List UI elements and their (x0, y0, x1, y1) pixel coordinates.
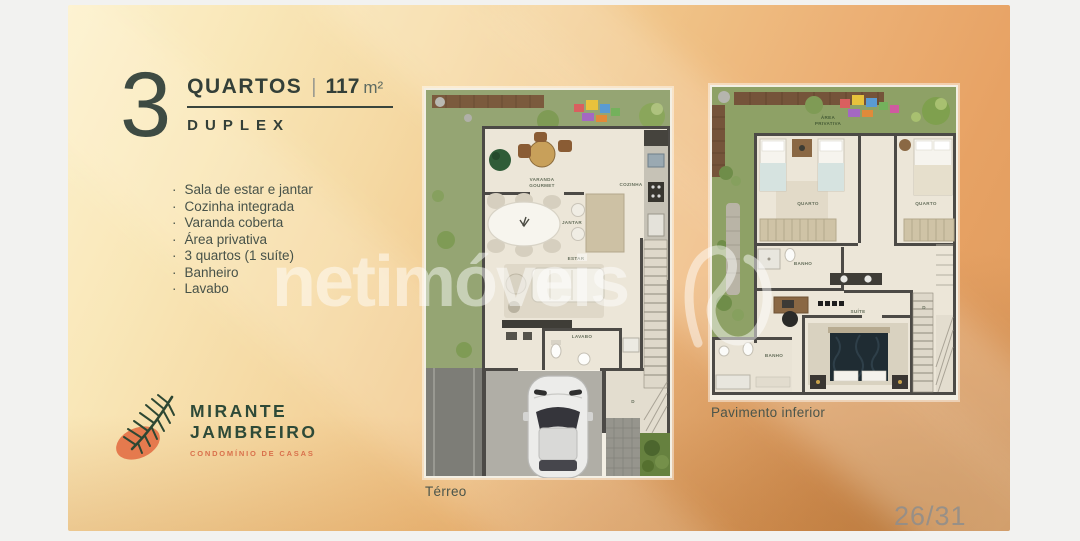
room-label: JANTAR (562, 220, 582, 225)
brand-name-line2: JAMBREIRO (190, 422, 318, 443)
room-label: SUÍTE (850, 307, 865, 314)
room-label: VARANDA (530, 177, 555, 182)
brand-tagline: CONDOMÍNIO DE CASAS (190, 449, 318, 458)
feature-text: Área privativa (185, 232, 268, 247)
pavers (606, 418, 640, 476)
bullet: · (172, 281, 177, 296)
feature-text: Cozinha integrada (185, 199, 295, 214)
header-separator: | (311, 76, 316, 99)
watermark-logo-icon (680, 225, 800, 365)
car (523, 376, 593, 478)
bullet: · (172, 215, 177, 230)
bullet: · (172, 182, 177, 197)
room-label: QUARTO (915, 201, 937, 206)
feature-text: Lavabo (185, 281, 229, 296)
room-label: GOURMET (529, 183, 555, 188)
stair-direction-label: D (631, 399, 635, 404)
feature-item: ·Sala de estar e jantar (172, 182, 313, 199)
brand-logo: MIRANTE JAMBREIRO CONDOMÍNIO DE CASAS (108, 387, 318, 471)
feature-text: Sala de estar e jantar (185, 182, 313, 197)
room-label: COZINHA (619, 182, 642, 187)
plan-caption-pavimento-inferior: Pavimento inferior (711, 405, 825, 420)
corner-plant (640, 433, 670, 476)
suite (808, 323, 908, 389)
unit-bedroom-count: 3 (120, 63, 171, 148)
feature-text: Banheiro (185, 265, 239, 280)
bullet: · (172, 248, 177, 263)
gallery-counter: 26/31 (894, 501, 967, 531)
feature-item: ·Cozinha integrada (172, 199, 313, 216)
stone (718, 91, 730, 103)
watermark-text: netimóveis (272, 241, 628, 323)
garden-label: ÁREA (821, 114, 836, 120)
bullet: · (172, 232, 177, 247)
header-divider (187, 106, 393, 108)
bullet: · (172, 265, 177, 280)
area-unit: m² (363, 78, 383, 98)
room-label: QUARTO (797, 201, 819, 206)
plan-caption-terreo: Térreo (425, 484, 467, 499)
bullet: · (172, 199, 177, 214)
garden-label: PRIVATIVA (815, 121, 842, 126)
brand-name-line1: MIRANTE (190, 401, 318, 422)
feature-item: ·Varanda coberta (172, 215, 313, 232)
room-label: LAVABO (572, 334, 593, 339)
area-value: 117 (326, 75, 360, 99)
stone (435, 97, 445, 107)
unit-type-label: DUPLEX (187, 117, 393, 134)
stair-direction-label: D (922, 305, 926, 310)
rooms-label: QUARTOS (187, 75, 302, 99)
unit-header: 3 QUARTOS | 117 m² DUPLEX (120, 63, 393, 148)
fern-leaf-icon (108, 387, 184, 471)
feature-text: Varanda coberta (185, 215, 284, 230)
deck (432, 95, 544, 108)
slide: 3 QUARTOS | 117 m² DUPLEX ·Sala de estar… (0, 0, 1080, 541)
brochure-card: 3 QUARTOS | 117 m² DUPLEX ·Sala de estar… (68, 5, 1010, 531)
